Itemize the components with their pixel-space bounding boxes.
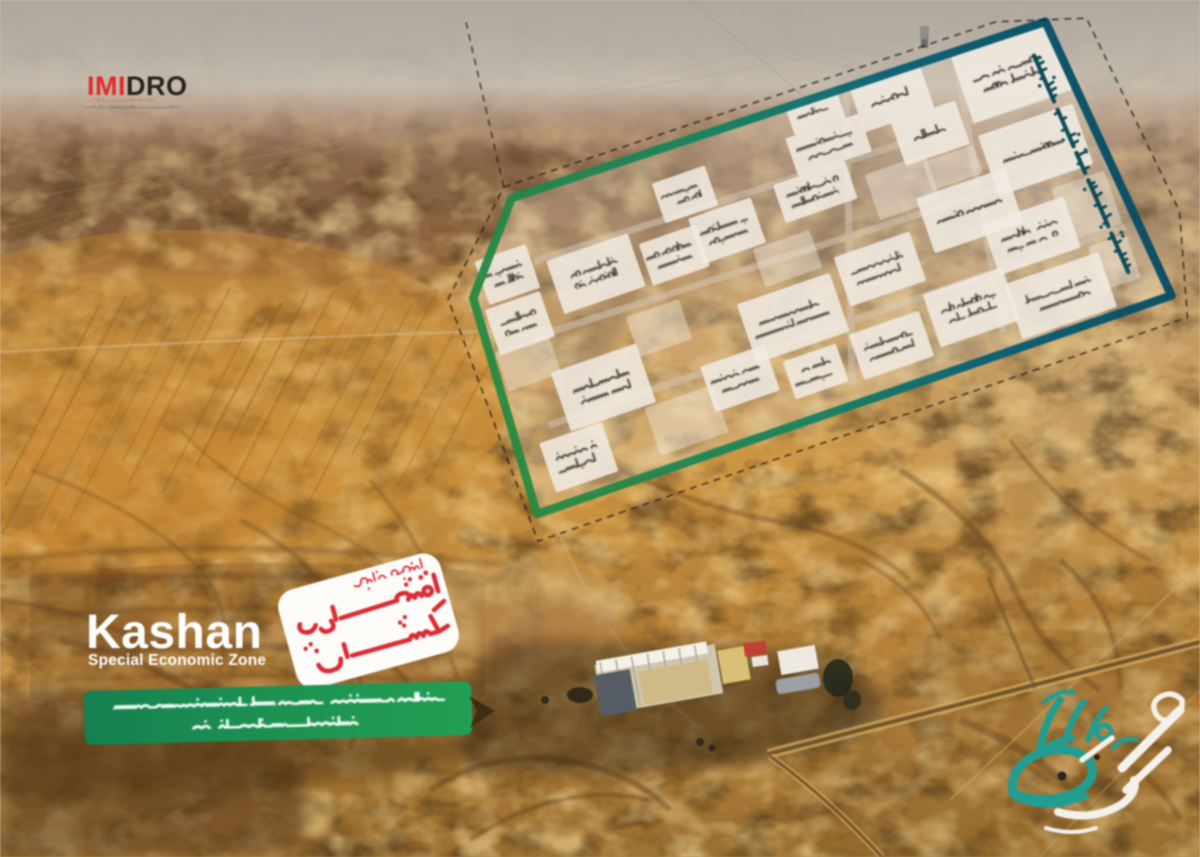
svg-text:Special Economic Zone: Special Economic Zone (88, 652, 266, 669)
svg-text:IMIDRO: IMIDRO (87, 71, 188, 101)
